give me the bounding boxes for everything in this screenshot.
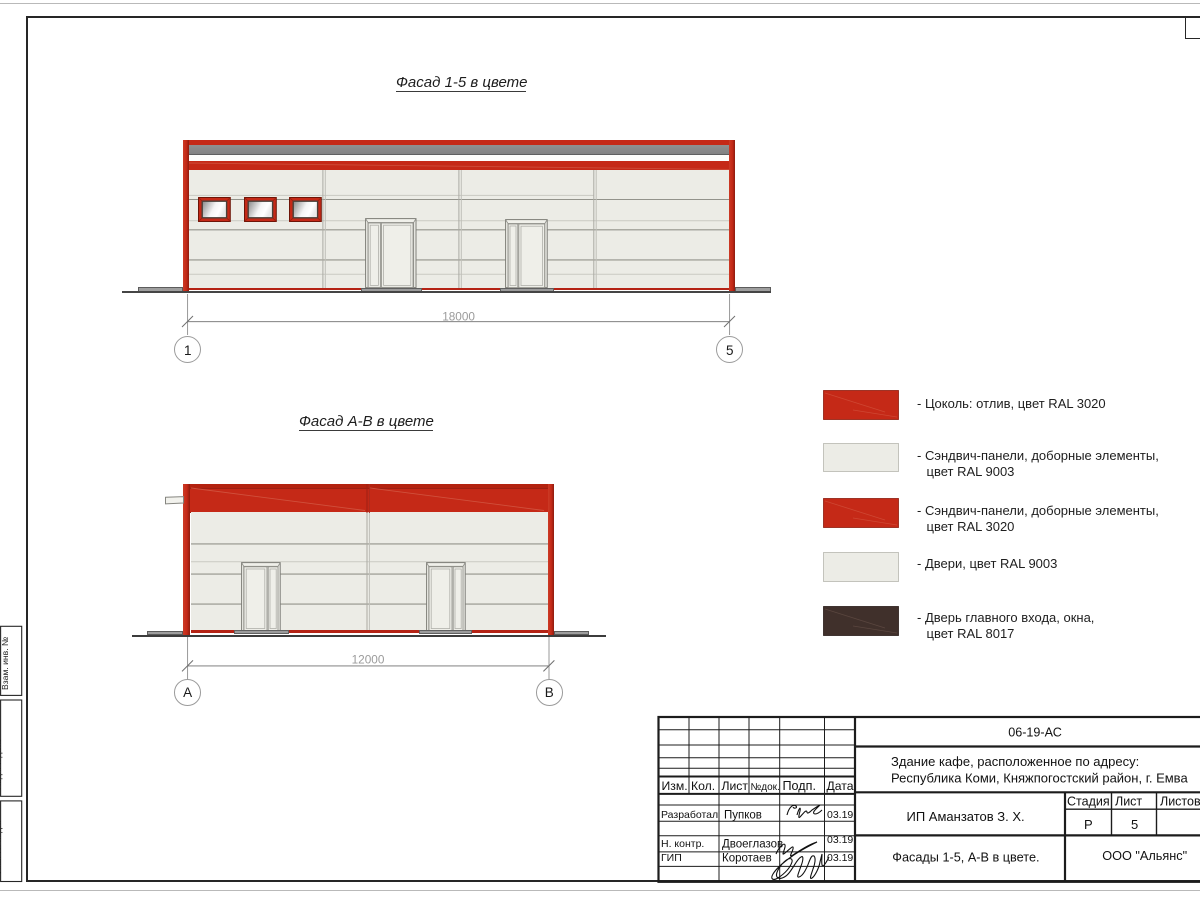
svg-text:03.19: 03.19 xyxy=(827,834,853,846)
svg-text:Коротаев: Коротаев xyxy=(722,852,772,864)
svg-text:Взам. инв. №: Взам. инв. № xyxy=(0,637,10,690)
svg-text:03.19: 03.19 xyxy=(827,852,853,864)
svg-text:12000: 12000 xyxy=(352,653,385,667)
svg-text:Изм.: Изм. xyxy=(662,779,688,793)
svg-text:№док.: №док. xyxy=(751,782,780,793)
svg-text:5: 5 xyxy=(1131,817,1138,832)
svg-text:Лист: Лист xyxy=(722,779,749,793)
svg-text:Н. контр.: Н. контр. xyxy=(661,838,704,850)
svg-text:Листов: Листов xyxy=(1160,795,1200,809)
svg-text:Кол.: Кол. xyxy=(691,779,715,793)
svg-text:Пупков: Пупков xyxy=(724,810,762,822)
svg-text:Р: Р xyxy=(1084,817,1093,832)
svg-text:Двоеглазов: Двоеглазов xyxy=(722,838,783,850)
svg-text:ИП Аманзатов З. Х.: ИП Аманзатов З. Х. xyxy=(907,809,1025,824)
svg-text:Здание кафе, расположенное по: Здание кафе, расположенное по адресу: xyxy=(891,754,1139,769)
svg-text:Стадия: Стадия xyxy=(1067,795,1110,809)
svg-text:06-19-АС: 06-19-АС xyxy=(1008,726,1062,740)
svg-text:Лист: Лист xyxy=(1115,795,1142,809)
svg-text:ГИП: ГИП xyxy=(661,852,682,864)
svg-text:18000: 18000 xyxy=(442,310,475,324)
svg-text:Подп. и дата: Подп. и дата xyxy=(0,739,3,790)
svg-text:Дата: Дата xyxy=(827,779,854,793)
svg-text:ООО "Альянс": ООО "Альянс" xyxy=(1102,849,1187,863)
svg-text:Разработал: Разработал xyxy=(661,809,718,821)
svg-text:Фасады 1-5, А-В в цвете.: Фасады 1-5, А-В в цвете. xyxy=(892,851,1039,865)
svg-text:Подп.: Подп. xyxy=(783,779,816,793)
svg-text:03.19: 03.19 xyxy=(827,809,853,821)
svg-text:Республика Коми, Княжпогостски: Республика Коми, Княжпогостский район, г… xyxy=(891,770,1188,785)
svg-text:Инв. № подл.: Инв. № подл. xyxy=(0,820,3,874)
